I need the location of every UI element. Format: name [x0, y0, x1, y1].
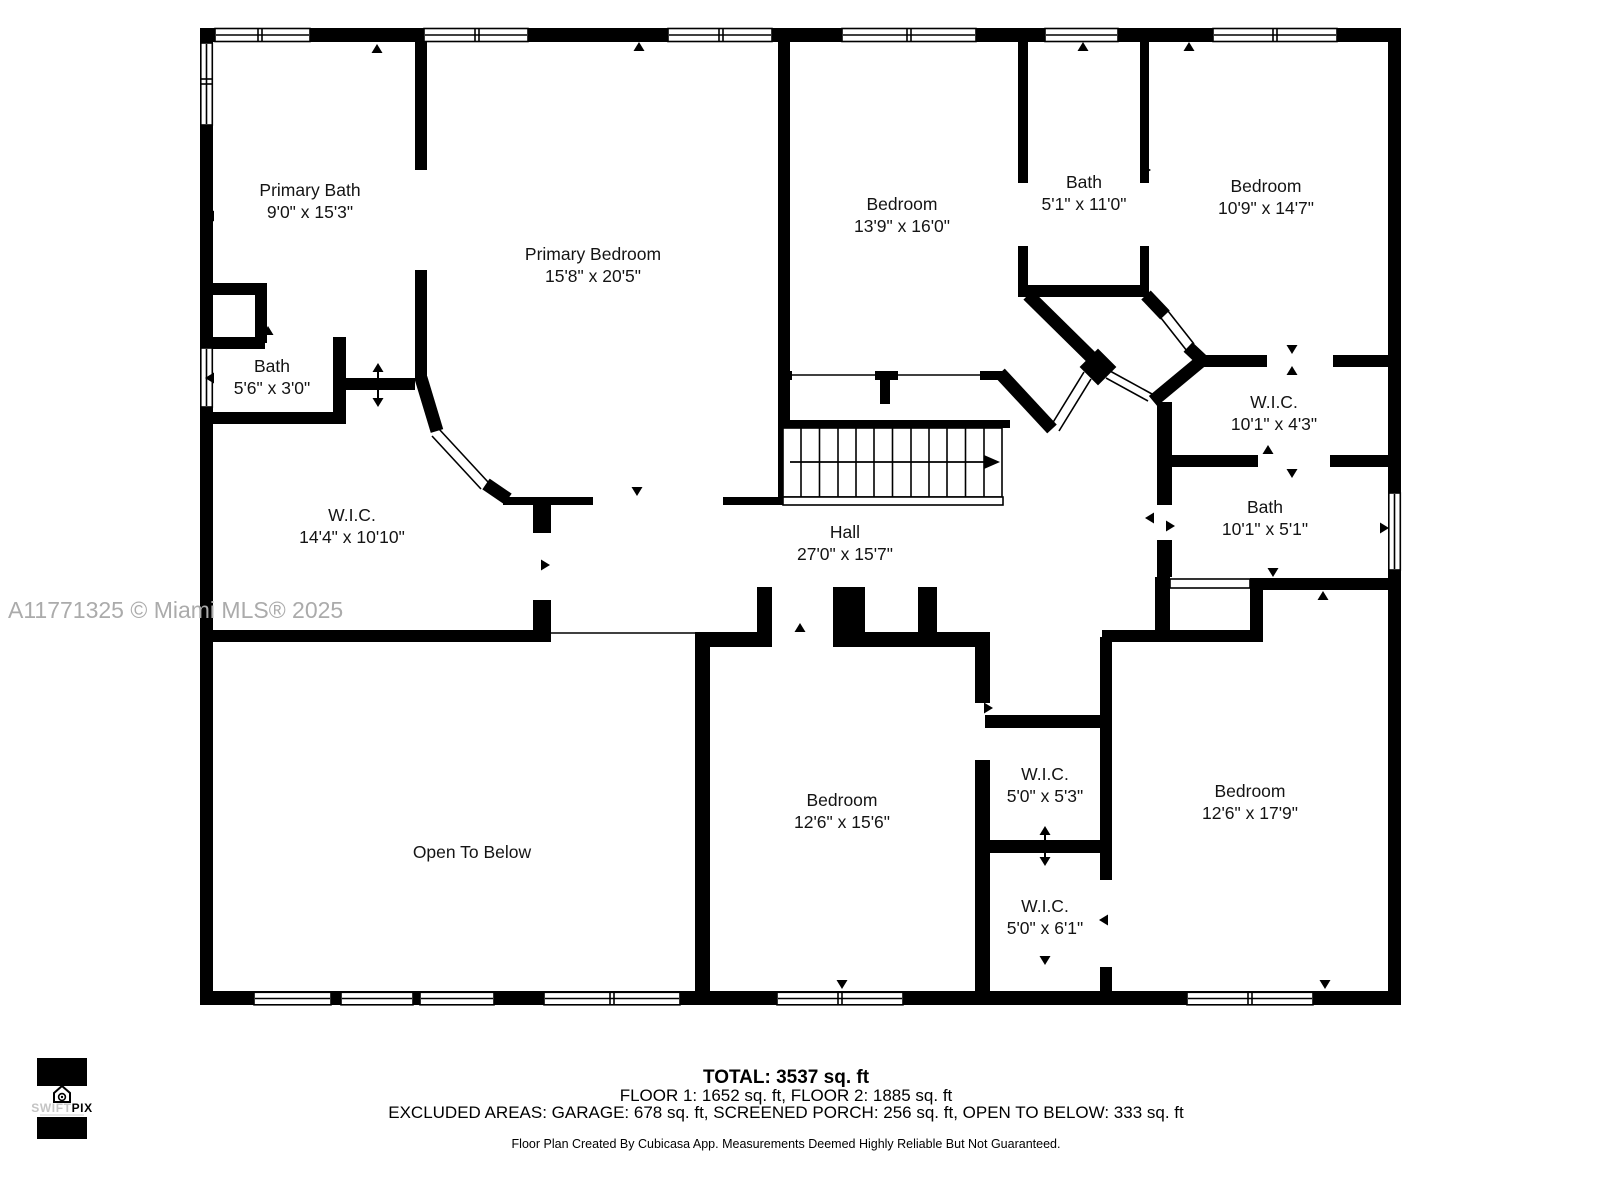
excluded-areas: EXCLUDED AREAS: GARAGE: 678 sq. ft, SCRE… — [388, 1103, 1184, 1122]
svg-text:13'9" x 16'0": 13'9" x 16'0" — [854, 216, 950, 236]
svg-text:Bath: Bath — [254, 356, 290, 376]
svg-text:Bedroom: Bedroom — [1214, 781, 1285, 801]
window — [341, 992, 413, 1005]
brand-swift: SWIFT — [31, 1101, 71, 1115]
svg-text:Bath: Bath — [1247, 497, 1283, 517]
svg-text:Bedroom: Bedroom — [1230, 176, 1301, 196]
window — [424, 29, 528, 42]
disclaimer: Floor Plan Created By Cubicasa App. Meas… — [512, 1137, 1061, 1151]
svg-text:5'1" x 11'0": 5'1" x 11'0" — [1042, 194, 1127, 214]
svg-text:15'8" x 20'5": 15'8" x 20'5" — [545, 266, 641, 286]
window — [544, 992, 680, 1005]
total-area: TOTAL: 3537 sq. ft — [703, 1067, 870, 1088]
svg-text:10'1" x 4'3": 10'1" x 4'3" — [1231, 414, 1317, 434]
window — [420, 992, 494, 1005]
window — [668, 29, 772, 42]
logo-divider — [40, 1115, 84, 1116]
staircase — [783, 428, 1003, 505]
svg-text:W.I.C.: W.I.C. — [1021, 764, 1069, 784]
svg-text:5'0" x 6'1": 5'0" x 6'1" — [1007, 918, 1084, 938]
window — [842, 29, 976, 42]
svg-text:5'6" x 3'0": 5'6" x 3'0" — [234, 378, 311, 398]
window — [254, 992, 331, 1005]
stair-rail — [783, 497, 1003, 505]
svg-text:27'0" x 15'7": 27'0" x 15'7" — [797, 544, 893, 564]
window — [777, 992, 903, 1005]
svg-text:5'0" x 5'3": 5'0" x 5'3" — [1007, 786, 1084, 806]
logo-block-bottom — [37, 1117, 87, 1139]
window — [201, 43, 213, 125]
window — [1187, 992, 1313, 1005]
svg-text:Primary Bedroom: Primary Bedroom — [525, 244, 661, 264]
svg-text:12'6" x 15'6": 12'6" x 15'6" — [794, 812, 890, 832]
svg-text:W.I.C.: W.I.C. — [1250, 392, 1298, 412]
svg-text:9'0" x 15'3": 9'0" x 15'3" — [267, 202, 353, 222]
logo-block-top — [37, 1058, 87, 1086]
mls-watermark: A11771325 © Miami MLS® 2025 — [8, 597, 343, 623]
svg-text:Hall: Hall — [830, 522, 860, 542]
floor-plan-page: Primary Bath 9'0" x 15'3" Primary Bedroo… — [0, 0, 1600, 1200]
window — [215, 29, 310, 42]
svg-text:SWIFTPIX: SWIFTPIX — [31, 1101, 92, 1115]
window — [1389, 493, 1401, 570]
svg-text:Primary Bath: Primary Bath — [259, 180, 360, 200]
svg-text:W.I.C.: W.I.C. — [328, 505, 376, 525]
svg-text:Bath: Bath — [1066, 172, 1102, 192]
svg-text:W.I.C.: W.I.C. — [1021, 896, 1069, 916]
room-label-open-to-below: Open To Below — [413, 842, 532, 862]
svg-text:10'9" x 14'7": 10'9" x 14'7" — [1218, 198, 1314, 218]
svg-text:10'1" x 5'1": 10'1" x 5'1" — [1222, 519, 1308, 539]
svg-text:Bedroom: Bedroom — [806, 790, 877, 810]
floor-plan-image: Primary Bath 9'0" x 15'3" Primary Bedroo… — [0, 0, 1600, 1200]
svg-text:Open To Below: Open To Below — [413, 842, 532, 862]
brand-pix: PIX — [72, 1101, 93, 1115]
svg-text:14'4" x 10'10": 14'4" x 10'10" — [299, 527, 405, 547]
window — [1213, 29, 1337, 42]
window — [1045, 29, 1118, 42]
svg-text:Bedroom: Bedroom — [866, 194, 937, 214]
svg-text:12'6" x 17'9": 12'6" x 17'9" — [1202, 803, 1298, 823]
